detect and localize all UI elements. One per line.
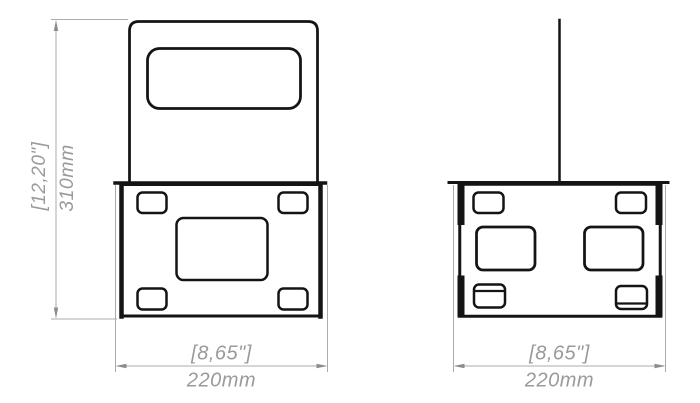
side-wall-left-bottom bbox=[458, 276, 465, 318]
height-dimension-secondary-label: [12,20"] bbox=[29, 141, 50, 211]
front-view bbox=[115, 22, 326, 317]
arrow-right-icon bbox=[317, 364, 328, 368]
front-panel-outline bbox=[130, 22, 318, 183]
front-width-primary-label: 220mm bbox=[186, 370, 256, 392]
side-hole-middle-right bbox=[585, 227, 644, 270]
front-hole-top-right bbox=[279, 193, 308, 214]
technical-drawing: [12,20"] 310mm [8,65"] 220mm [8,65"] 220… bbox=[0, 0, 700, 403]
front-width-secondary-label: [8,65"] bbox=[190, 343, 252, 365]
side-hole-top-left bbox=[474, 193, 504, 214]
arrow-left-icon bbox=[116, 364, 127, 368]
front-hole-bottom-left bbox=[138, 289, 167, 310]
side-wall-right-top bbox=[656, 184, 663, 225]
side-wall-left-top bbox=[458, 184, 465, 225]
side-hole-middle-left bbox=[477, 227, 536, 270]
side-width-dimension: [8,65"] 220mm bbox=[454, 185, 666, 392]
side-view bbox=[449, 20, 668, 318]
side-hole-top-right bbox=[616, 193, 646, 214]
arrow-up-icon bbox=[54, 20, 58, 31]
arrow-left-icon bbox=[454, 364, 465, 368]
height-dimension: [12,20"] 310mm bbox=[29, 20, 128, 320]
side-hole-bottom-right bbox=[616, 286, 647, 309]
side-width-secondary-label: [8,65"] bbox=[528, 343, 590, 365]
front-base-outline bbox=[122, 185, 322, 317]
side-wall-right-bottom bbox=[656, 276, 663, 318]
side-base-outline bbox=[460, 184, 661, 316]
arrow-down-icon bbox=[54, 308, 58, 319]
side-hole-bottom-left bbox=[474, 285, 505, 308]
front-hole-top-left bbox=[138, 193, 167, 214]
side-width-primary-label: 220mm bbox=[524, 370, 594, 392]
front-panel-slot bbox=[148, 49, 301, 109]
arrow-right-icon bbox=[655, 364, 666, 368]
height-dimension-primary-label: 310mm bbox=[56, 144, 78, 212]
front-hole-center bbox=[177, 218, 268, 280]
front-hole-bottom-right bbox=[279, 289, 308, 310]
drawing-canvas: [12,20"] 310mm [8,65"] 220mm [8,65"] 220… bbox=[0, 0, 700, 403]
